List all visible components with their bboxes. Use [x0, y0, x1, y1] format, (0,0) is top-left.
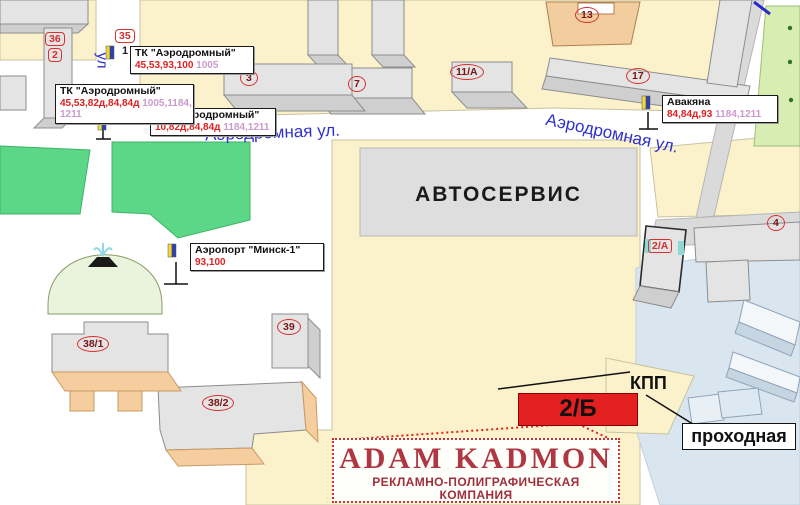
house-number-4: 4 — [767, 215, 785, 231]
house-number-2a: 2/А — [648, 239, 672, 253]
prohodnaya-label: проходная — [682, 423, 796, 450]
building-topleft — [0, 0, 88, 24]
house-badge-2: 2 — [48, 48, 62, 62]
building-4a — [694, 222, 800, 262]
callout-numbers: 45,53,93,100 1005 — [135, 60, 249, 72]
house-badge-35: 35 — [115, 29, 135, 43]
building-4b — [706, 260, 750, 302]
kpp-label: КПП — [630, 373, 667, 394]
building-38-1 — [52, 322, 168, 372]
ad-company-name: ADAM KADMON — [334, 442, 618, 476]
house-number-13: 13 — [575, 7, 599, 23]
building-tall-2 — [372, 0, 404, 55]
house-number-11a: 11/А — [450, 64, 484, 80]
map-stage: Аэродромная ул. Аэродромная ул. ул АВТОС… — [0, 0, 800, 505]
callout-numbers: 84,84д,93 1184,1211 — [667, 109, 773, 121]
street-label-vertical-fragment: ул — [93, 53, 110, 69]
callout-numbers: 1211 — [60, 109, 189, 121]
callout-numbers: 93,100 — [195, 257, 319, 269]
house-number-39: 39 — [277, 319, 301, 335]
building-prohodnaya-2 — [718, 388, 762, 418]
callout-avakyana: Авакяна 84,84д,93 1184,1211 — [662, 95, 778, 123]
callout-tk-aerodromny-1: ТК "Аэродромный" 45,53,93,100 1005 — [130, 46, 254, 74]
bus-stop-icon — [642, 96, 650, 109]
callout-title: ТК "Аэродромный" — [60, 86, 189, 98]
callout-numbers: 45,53,82д,84,84д 1005,1184, — [60, 98, 189, 110]
house-badge-1: 1 — [122, 45, 128, 57]
house-badge-36: 36 — [45, 32, 65, 46]
callout-title: Авакяна — [667, 97, 773, 109]
building-tall-1 — [308, 0, 338, 55]
house-number-7: 7 — [348, 76, 366, 92]
callout-airport-minsk-1: Аэропорт "Минск-1" 93,100 — [190, 243, 324, 271]
callout-tk-aerodromny-2: ТК "Аэродромный" 45,53,82д,84,84д 1005,1… — [55, 84, 194, 124]
bus-stop-icon — [168, 244, 176, 257]
highlight-2b-building: 2/Б — [518, 393, 638, 426]
ad-subtitle-line2: КОМПАНИЯ — [334, 489, 618, 502]
house-number-17: 17 — [626, 68, 650, 84]
adam-kadmon-ad: ADAM KADMON РЕКЛАМНО-ПОЛИГРАФИЧЕСКАЯ КОМ… — [332, 438, 620, 503]
map-canvas — [0, 0, 800, 505]
avtoservis-label: АВТОСЕРВИС — [360, 183, 637, 207]
callout-title: ТК "Аэродромный" — [135, 48, 249, 60]
callout-title: Аэропорт "Минск-1" — [195, 245, 319, 257]
